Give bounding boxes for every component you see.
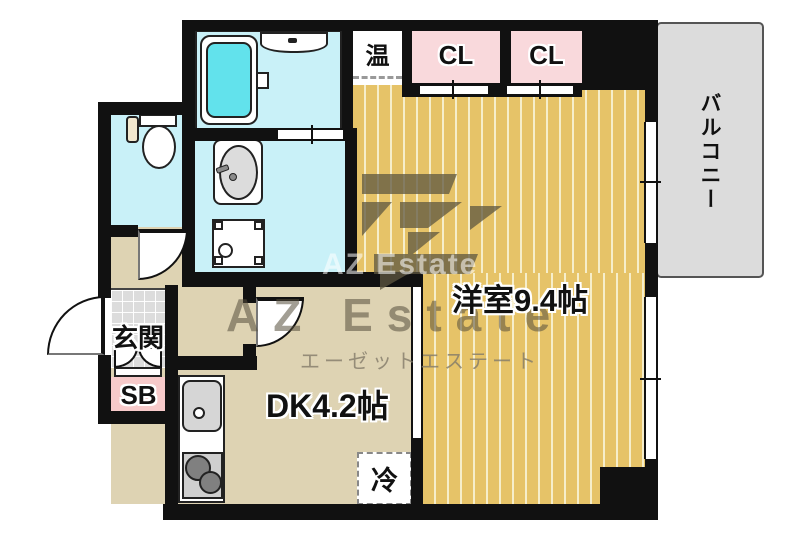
wall-top-right-block (582, 20, 658, 90)
watermark-brand-kana: エーゼットエステート (300, 345, 540, 374)
wall-dk-western-lower (411, 438, 423, 504)
closet-2-label: CL (529, 40, 564, 71)
washing-machine-pan-corner-tl (214, 221, 223, 230)
wall-entrance-kitchen-vertical (165, 285, 178, 511)
bath-faucet (288, 38, 297, 43)
wall-left-lower (98, 355, 111, 415)
shoe-box-top-strip (114, 367, 162, 377)
water-heater-label: 温 (366, 36, 390, 71)
refrigerator-box: 冷 (357, 452, 412, 505)
stove-burner-2 (199, 471, 222, 494)
closet-2-door-tick (539, 80, 541, 99)
washing-machine-pan-corner-br (254, 256, 263, 265)
western-room-label: 洋室9.4帖 (452, 275, 588, 320)
wall-right-a (645, 88, 658, 124)
washing-machine-drain (218, 243, 233, 258)
water-heater-box: 温 (353, 31, 402, 79)
wall-bathroom-heater-divider (342, 20, 353, 130)
kitchen-sink (182, 380, 222, 432)
closet-1-label: CL (439, 40, 474, 71)
shoe-box: SB (111, 377, 166, 413)
wall-left-upper (98, 102, 111, 298)
shoe-box-label: SB (120, 380, 156, 411)
wall-corridor-bottom (165, 356, 257, 370)
wall-toilet-top (98, 102, 195, 115)
bathroom-door-tick (311, 125, 313, 144)
washbasin-bowl (219, 145, 258, 200)
balcony-label: バルコニー (694, 92, 724, 212)
entrance-label: 玄関 (112, 318, 164, 355)
closet-1-door (420, 84, 488, 96)
closet-1: CL (412, 28, 500, 83)
washing-machine-pan-corner-tr (254, 221, 263, 230)
wall-bottom (163, 504, 658, 520)
refrigerator-label: 冷 (371, 459, 398, 498)
side-window-tick (640, 378, 661, 380)
dining-kitchen-label: DK4.2帖 (266, 381, 389, 427)
washbasin-drain (229, 173, 237, 181)
bathtub-basin (206, 42, 252, 118)
closet-1-door-tick (452, 80, 454, 99)
kitchen-sink-drain (193, 407, 205, 419)
wall-right-b (645, 241, 658, 299)
wall-closet-left (402, 20, 412, 97)
wall-toilet-bottom-stub (98, 225, 138, 237)
balcony-window-tick (640, 181, 661, 183)
bath-side-shelf (256, 72, 269, 89)
entry-door-arc (47, 296, 105, 355)
closet-2: CL (511, 28, 582, 83)
toilet-washlet-panel (126, 116, 139, 143)
floorplan: CL CL 温 冷 SB (0, 0, 800, 536)
toilet-bowl (142, 125, 176, 169)
